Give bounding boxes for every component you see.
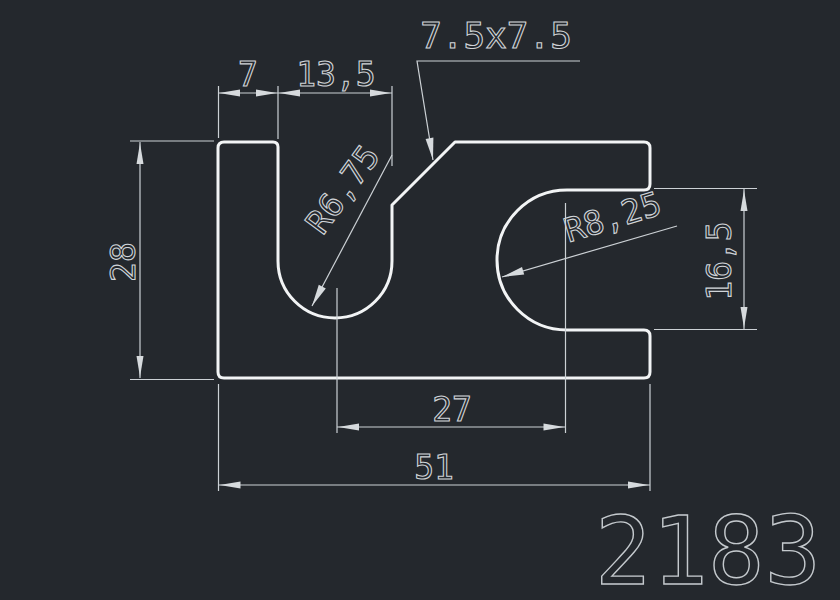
cad-drawing-viewport: 7 13,5 7.5x7.5 28 R6,75 R8,25: [0, 0, 840, 600]
dim-label-7: 7: [238, 55, 258, 94]
arrow-up-icon: [137, 143, 144, 164]
dim-label-r825: R8,25: [559, 184, 665, 250]
dim-label-13-5: 13,5: [296, 55, 375, 94]
dim-label-51: 51: [414, 448, 454, 487]
arrow-left-icon: [220, 482, 241, 489]
leader-line-chamfer: [417, 61, 580, 160]
fork-radius-callout-group: R8,25: [502, 184, 677, 277]
arrow-down-icon: [137, 356, 144, 377]
chamfer-callout-group: 7.5x7.5: [417, 15, 580, 160]
dim-label-16-5: 16,5: [700, 221, 739, 300]
dim-label-27: 27: [432, 390, 472, 429]
arrow-left-icon: [219, 90, 240, 97]
slot-radius-callout-group: R6,75: [298, 138, 392, 306]
arrow-right-icon: [544, 424, 565, 431]
dimension-bottom-inner-group: 27: [337, 203, 566, 433]
dimension-left-group: 28: [104, 141, 214, 380]
arrow-right-icon: [628, 482, 649, 489]
arrow-up-icon: [741, 190, 748, 211]
arrow-down-icon: [741, 307, 748, 328]
dim-label-chamfer: 7.5x7.5: [420, 15, 572, 56]
arrow-right-icon: [256, 90, 277, 97]
leader-arrow-icon: [502, 267, 524, 277]
part-outline: [218, 142, 650, 378]
arrow-left-icon: [338, 424, 359, 431]
dimension-right-group: 16,5: [654, 189, 757, 330]
leader-arrow-icon: [312, 285, 326, 306]
part-number: 2183: [595, 497, 821, 600]
leader-arrow-icon: [426, 138, 434, 160]
dim-label-28: 28: [104, 242, 143, 282]
cad-drawing-canvas: 7 13,5 7.5x7.5 28 R6,75 R8,25: [0, 0, 840, 600]
